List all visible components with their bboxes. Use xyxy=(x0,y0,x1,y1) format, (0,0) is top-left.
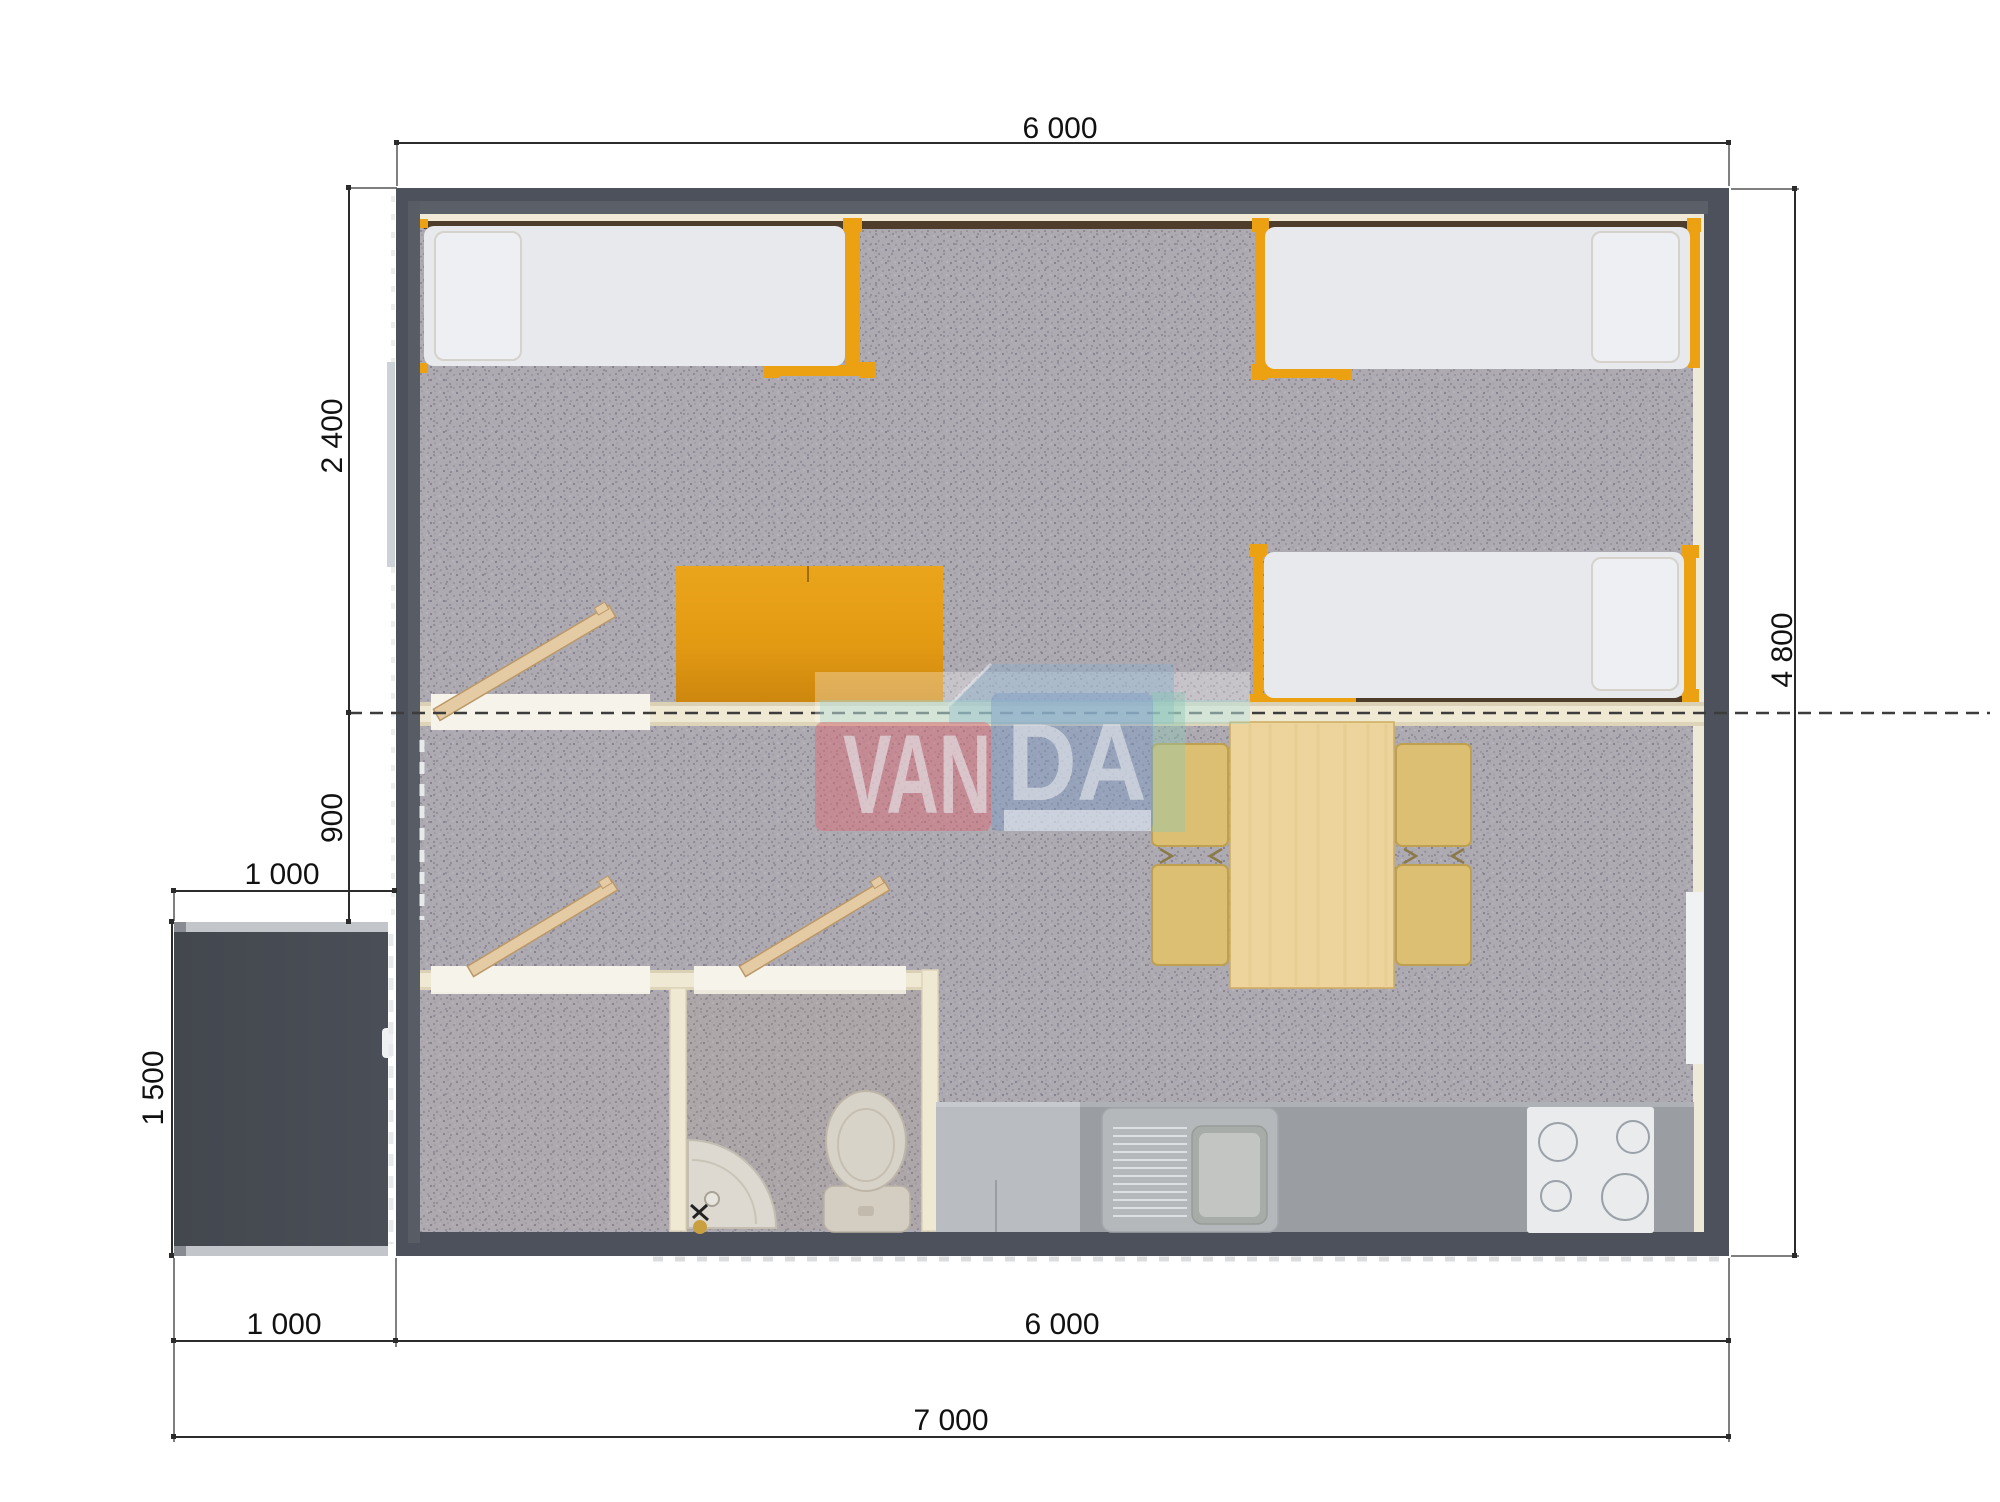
svg-text:6 000: 6 000 xyxy=(1024,1308,1099,1341)
svg-text:4 800: 4 800 xyxy=(1766,612,1799,687)
svg-text:1 000: 1 000 xyxy=(246,1308,321,1341)
svg-text:6 000: 6 000 xyxy=(1022,112,1097,145)
svg-text:1 000: 1 000 xyxy=(244,858,319,891)
svg-text:2 400: 2 400 xyxy=(316,398,349,473)
svg-text:900: 900 xyxy=(316,793,349,843)
svg-text:1 500: 1 500 xyxy=(137,1050,170,1125)
svg-text:7 000: 7 000 xyxy=(913,1404,988,1437)
svg-text:DA: DA xyxy=(1007,700,1146,823)
svg-text:VAN: VAN xyxy=(843,712,991,838)
